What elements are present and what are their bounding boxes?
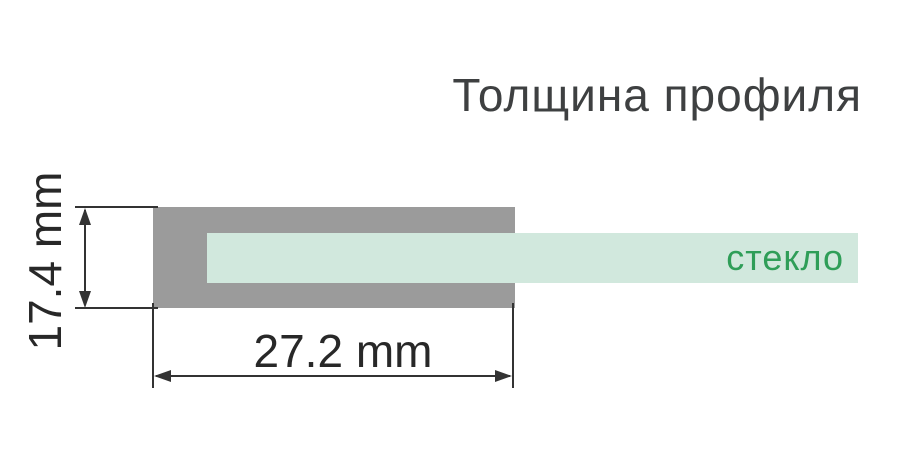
arrow-right-icon	[495, 370, 512, 382]
page-title: Толщина профиля	[452, 68, 862, 122]
height-dimension-label: 17.4 mm	[20, 171, 70, 351]
width-dim-extension-right	[512, 303, 514, 388]
width-dimension-label: 27.2 mm	[233, 327, 453, 375]
arrow-up-icon	[79, 208, 91, 225]
glass-label: стекло	[726, 237, 844, 279]
glass-panel: стекло	[207, 233, 858, 283]
arrow-left-icon	[154, 370, 171, 382]
profile-thickness-diagram: Толщина профиля стекло 17.4 mm 27.2 mm	[0, 0, 900, 465]
arrow-down-icon	[79, 291, 91, 308]
